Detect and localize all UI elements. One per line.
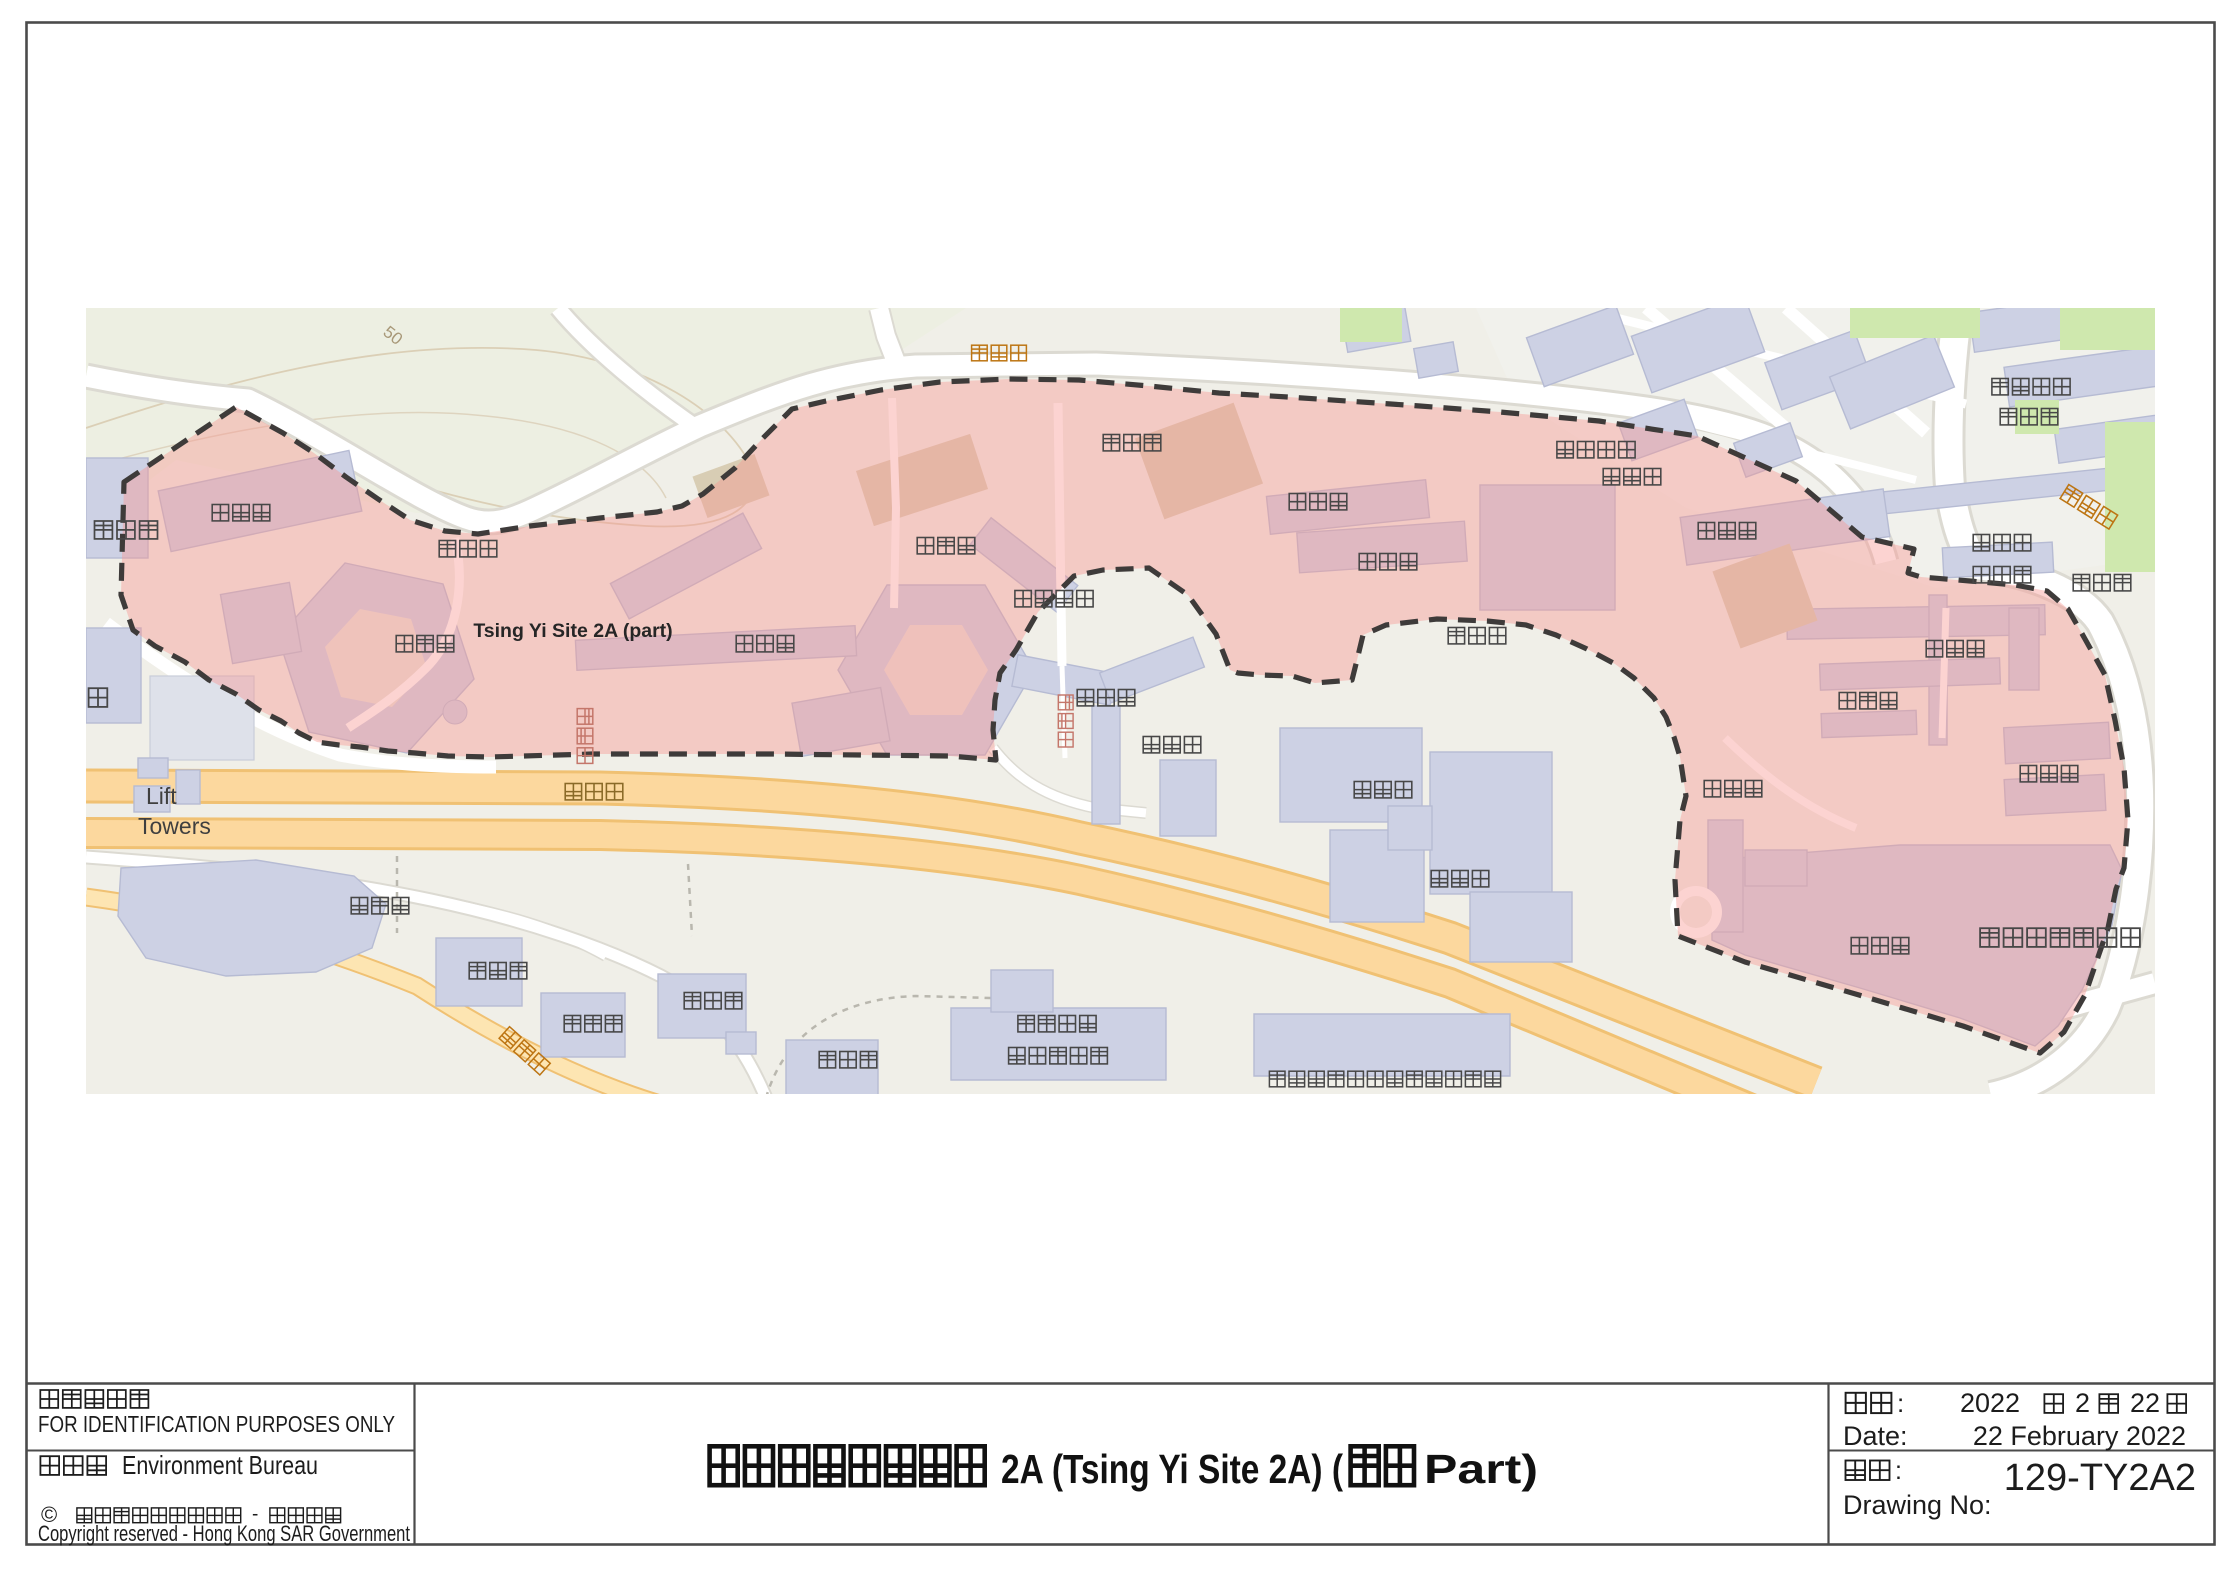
svg-text:22: 22 <box>2130 1388 2160 1418</box>
svg-text:22 February 2022: 22 February 2022 <box>1973 1421 2186 1451</box>
svg-text:Lift: Lift <box>146 783 177 809</box>
svg-text:Part): Part) <box>1424 1446 1538 1492</box>
svg-text::: : <box>1897 1388 1904 1418</box>
svg-text:129-TY2A2: 129-TY2A2 <box>2004 1457 2196 1499</box>
svg-text:Tsing Yi Site 2A (part): Tsing Yi Site 2A (part) <box>473 620 672 642</box>
svg-text:Drawing No:: Drawing No: <box>1843 1490 1992 1520</box>
svg-text:Environment Bureau: Environment Bureau <box>122 1450 318 1480</box>
svg-text:Copyright reserved - Hong Kong: Copyright reserved - Hong Kong SAR Gover… <box>38 1521 410 1546</box>
svg-text:Date:: Date: <box>1843 1421 1908 1451</box>
svg-text:2A (Tsing Yi Site 2A) (: 2A (Tsing Yi Site 2A) ( <box>1001 1446 1343 1492</box>
svg-text:2022: 2022 <box>1960 1388 2020 1418</box>
svg-text:Towers: Towers <box>138 813 211 839</box>
svg-text:FOR IDENTIFICATION PURPOSES ON: FOR IDENTIFICATION PURPOSES ONLY <box>38 1411 395 1437</box>
svg-text:2: 2 <box>2075 1388 2090 1418</box>
svg-text::: : <box>1895 1457 1902 1485</box>
